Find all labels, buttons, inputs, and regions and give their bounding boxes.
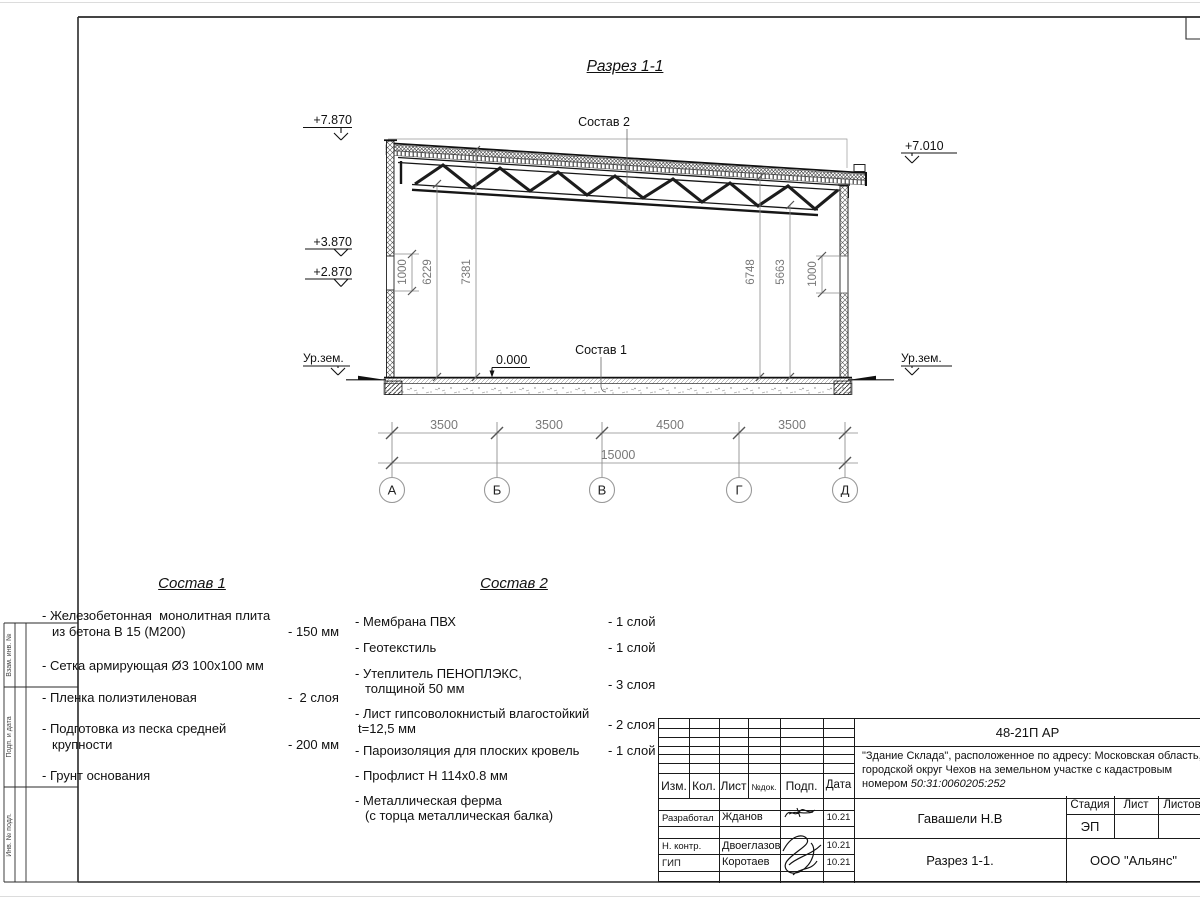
margin-label-vzam: Взам. инв. № (6, 633, 13, 676)
comp1-item5-line1: - Грунт основания (42, 768, 150, 783)
sheet-label: Лист (1114, 799, 1158, 811)
comp2-item3-line1: - Утеплитель ПЕНОПЛЭКС, (355, 666, 522, 681)
signature-zhdanov (782, 803, 822, 825)
comp2-item3-value: - 3 слоя (608, 677, 655, 692)
row2-role: Н. контр. (662, 841, 701, 852)
row3-role: ГИП (662, 858, 681, 869)
comp2-item5-value: - 1 слой (608, 743, 656, 758)
project-line3: номером 50:31:0060205:252 (862, 778, 1006, 790)
right-footing (834, 381, 851, 395)
margin-labels: Взам. инв. № Подп. и дата Инв. № подл. (6, 633, 13, 856)
margin-label-inv: Инв. № подл. (6, 813, 13, 857)
sheets-label: Листов (1158, 799, 1200, 811)
project-line2: городской округ Чехов на земельном участ… (862, 764, 1172, 776)
col-kol: Кол. (689, 779, 719, 793)
comp2-item5-line1: - Пароизоляция для плоских кровель (355, 743, 579, 758)
approver-name: Гавашели Н.В (854, 811, 1066, 826)
axis-bubble-a: А (388, 483, 397, 498)
section-view: +7.870 +3.870 +2.870 +7.010 Ур.зем. (303, 113, 957, 503)
vdim-5663: 5663 (775, 259, 787, 285)
right-wall (838, 185, 850, 378)
comp1-item2-line1: - Сетка армирующая Ø3 100х100 мм (42, 658, 264, 673)
comp1-item1-line2: из бетона В 15 (М200) (52, 624, 186, 639)
comp2-item3-line2: толщиной 50 мм (365, 681, 465, 696)
comp1-item1-value: - 150 мм (288, 624, 339, 639)
row3-date: 10.21 (823, 857, 854, 868)
company-name: ООО "Альянс" (1066, 853, 1200, 868)
hdim-a-b: 3500 (430, 418, 458, 432)
vdim-6229: 6229 (422, 259, 434, 285)
comp1-item4-line1: - Подготовка из песка средней (42, 721, 226, 736)
row3-name: Коротаев (722, 856, 770, 868)
roof-package (386, 143, 866, 186)
vdim-1000-left: 1000 (397, 259, 409, 285)
comp1-item4-line2: крупности (52, 737, 112, 752)
elevation-3870: +3.870 (305, 235, 352, 256)
project-line1: "Здание Склада", расположенное по адресу… (862, 750, 1200, 762)
hdim-g-d: 3500 (778, 418, 806, 432)
axis-bubble-v: В (598, 483, 607, 498)
axis-dimension-chain: 3500 3500 4500 3500 15000 А Б В Г Д (378, 418, 858, 503)
elevation-7010: +7.010 (901, 139, 957, 163)
axis-bubble-b: Б (493, 483, 502, 498)
comp2-item4-value: - 2 слоя (608, 717, 655, 732)
hdim-total: 15000 (601, 448, 636, 462)
sheet-title: Разрез 1-1. (854, 853, 1066, 868)
row2-name: Двоеглазов (722, 840, 780, 852)
row2-date: 10.21 (823, 840, 854, 851)
axis-bubble-d: Д (841, 483, 850, 498)
left-footing (385, 381, 402, 395)
left-wall (384, 140, 397, 378)
row1-name: Жданов (722, 811, 763, 823)
corner-stamp-box (1186, 17, 1200, 39)
axis-bubble-g: Г (735, 483, 742, 498)
composition-2-title: Состав 2 (355, 575, 673, 592)
col-data: Дата (823, 779, 854, 791)
zero-level-mark: 0.000 (490, 353, 531, 378)
callout-floor-label: Состав 1 (575, 343, 627, 357)
col-podp: Подп. (780, 779, 823, 793)
elevation-7870: +7.870 (303, 113, 352, 140)
ground-level-right: Ур.зем. (901, 351, 952, 375)
composition-1-title: Состав 1 (42, 575, 342, 592)
col-list: Лист (719, 779, 748, 793)
comp1-item1-line1: - Железобетонная монолитная плита (42, 608, 270, 623)
col-ndok: №док. (748, 782, 780, 792)
project-line3-prefix: номером (862, 778, 911, 790)
comp2-item7-line2: (с торца металлическая балка) (365, 808, 553, 823)
hdim-b-v: 3500 (535, 418, 563, 432)
elevation-3870-label: +3.870 (313, 235, 352, 249)
ground-right-label: Ур.зем. (901, 351, 942, 365)
elevation-7870-label: +7.870 (313, 113, 352, 127)
row1-role: Разработал (662, 813, 714, 824)
comp2-item6-line1: - Профлист Н 114х0.8 мм (355, 768, 508, 783)
cadastral-number: 50:31:0060205:252 (911, 778, 1006, 790)
margin-label-podp: Подп. и дата (6, 716, 13, 757)
comp2-item4-line2: t=12,5 мм (358, 721, 416, 736)
floor-slab (346, 376, 894, 395)
comp2-item1-line1: - Мембрана ПВХ (355, 614, 456, 629)
axis-bubbles: А Б В Г Д (380, 478, 858, 503)
truss-bottom-chord-inner (412, 190, 818, 215)
roof-edge-detail (854, 165, 865, 172)
callout-roof-label: Состав 2 (578, 115, 630, 129)
col-izm: Изм. (659, 779, 689, 793)
vdim-6748: 6748 (745, 259, 757, 285)
signature-kontr-gip (777, 831, 825, 881)
vdim-7381: 7381 (461, 259, 473, 285)
stage-label: Стадия (1066, 799, 1114, 811)
concrete-plate-layer (384, 378, 852, 383)
doc-number: 48-21П АР (854, 725, 1200, 740)
title-block: Изм. Кол. Лист №док. Подп. Дата Разработ… (658, 718, 1200, 882)
comp2-item1-value: - 1 слой (608, 614, 656, 629)
stage-value: ЭП (1066, 819, 1114, 834)
elevation-2870-label: +2.870 (313, 265, 352, 279)
drawing-sheet: { "drawing": { "title": "Разрез 1-1", "m… (0, 0, 1200, 900)
comp2-item4-line1: - Лист гипсоволокнистый влагостойкий (355, 706, 589, 721)
row1-date: 10.21 (823, 812, 854, 823)
sand-layer (384, 384, 852, 395)
comp2-item2-value: - 1 слой (608, 640, 656, 655)
comp2-item2-line1: - Геотекстиль (355, 640, 436, 655)
zero-level-label: 0.000 (496, 353, 527, 367)
roof-insulation-layer (386, 145, 866, 181)
elevation-2870: +2.870 (305, 265, 352, 287)
comp1-item3-value: - 2 слоя (288, 690, 339, 705)
hdim-v-g: 4500 (656, 418, 684, 432)
vdim-1000-right: 1000 (807, 261, 819, 287)
ground-left-label: Ур.зем. (303, 351, 344, 365)
comp1-item3-line1: - Пленка полиэтиленовая (42, 690, 197, 705)
elevation-7010-label: +7.010 (905, 139, 944, 153)
ground-level-left: Ур.зем. (303, 351, 350, 375)
comp1-item4-value: - 200 мм (288, 737, 339, 752)
comp2-item7-line1: - Металлическая ферма (355, 793, 502, 808)
